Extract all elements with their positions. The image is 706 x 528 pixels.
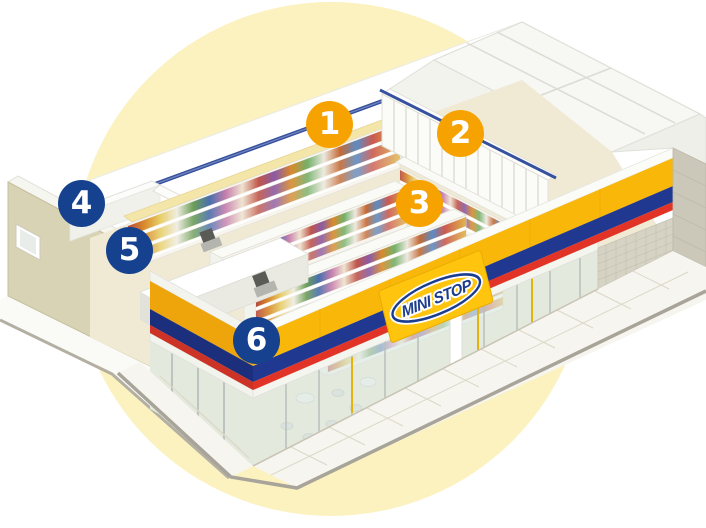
- marker-2: 2: [437, 110, 484, 157]
- marker-2-label: 2: [450, 118, 472, 149]
- marker-5-label: 5: [119, 235, 141, 266]
- marker-1: 1: [306, 101, 353, 148]
- marker-6-label: 6: [246, 325, 268, 356]
- right-side-wall: [673, 148, 706, 267]
- marker-6: 6: [233, 317, 280, 364]
- marker-3: 3: [396, 180, 443, 227]
- marker-5: 5: [106, 227, 153, 274]
- marker-1-label: 1: [319, 109, 341, 140]
- store-map-illustration: MINI STOP 1 2 3 4 5 6: [0, 0, 706, 528]
- marker-4: 4: [58, 180, 105, 227]
- store-isometric-drawing: MINI STOP: [0, 0, 706, 528]
- marker-3-label: 3: [409, 188, 431, 219]
- marker-4-label: 4: [71, 188, 93, 219]
